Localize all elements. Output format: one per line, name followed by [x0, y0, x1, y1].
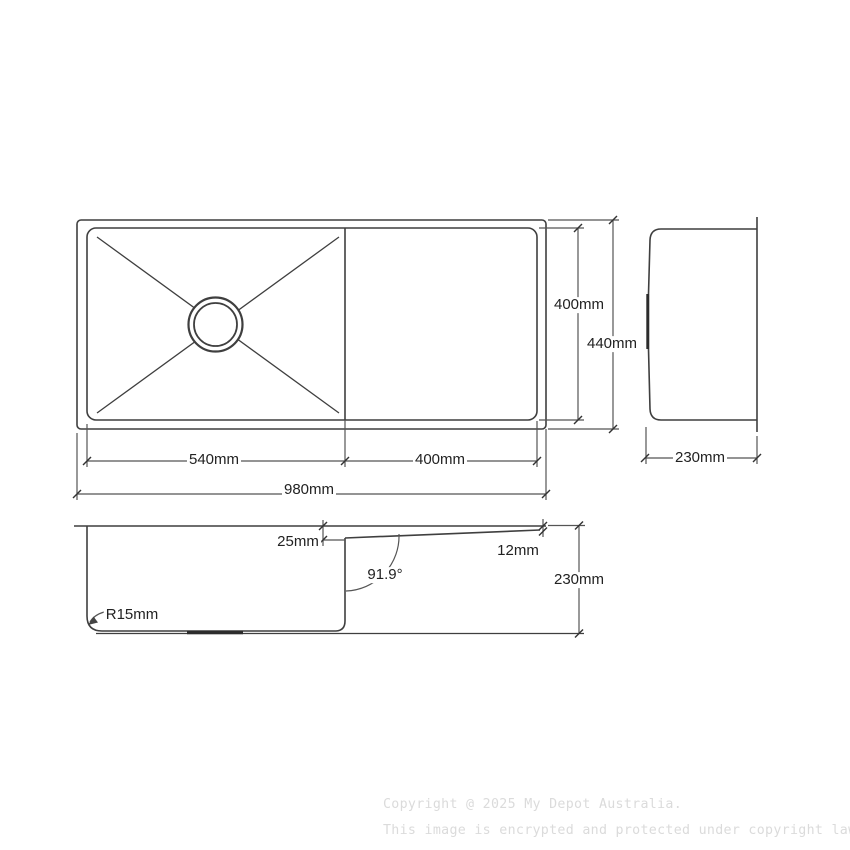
dim-label-corner-radius: R15mm	[104, 607, 161, 623]
section-drainer-slope	[345, 530, 540, 538]
side-top-profile	[649, 229, 758, 294]
dim-label-drainer-width: 400mm	[413, 452, 467, 468]
dim-label-edge-depth: 12mm	[495, 543, 541, 559]
radius-arrowhead	[88, 617, 98, 626]
dimension-ticks	[73, 216, 761, 638]
dim-label-wall-angle: 91.9°	[365, 567, 404, 583]
dim-label-top-inner-width: 400mm	[552, 297, 606, 313]
drain-outer-circle	[189, 298, 243, 352]
dim-label-step-depth: 25mm	[275, 534, 321, 550]
sink-outer-rim	[77, 220, 546, 429]
dim-label-top-outer-height: 440mm	[585, 336, 639, 352]
dim-label-section-depth: 230mm	[552, 572, 606, 588]
dim-label-side-depth: 230mm	[673, 450, 727, 466]
drawing-linework	[0, 0, 850, 850]
watermark-copyright-line: Copyright @ 2025 My Depot Australia.	[383, 797, 682, 812]
dim-label-overall-width: 980mm	[282, 482, 336, 498]
side-view	[648, 217, 757, 432]
sink-technical-drawing: 400mm 440mm 540mm 400mm 980mm 230mm 25mm…	[0, 0, 850, 850]
watermark-protection-line: This image is encrypted and protected un…	[383, 823, 850, 838]
dim-label-bowl-width: 540mm	[187, 452, 241, 468]
top-view	[77, 220, 546, 429]
side-bottom-profile	[649, 349, 758, 420]
dimension-lines	[77, 220, 757, 634]
